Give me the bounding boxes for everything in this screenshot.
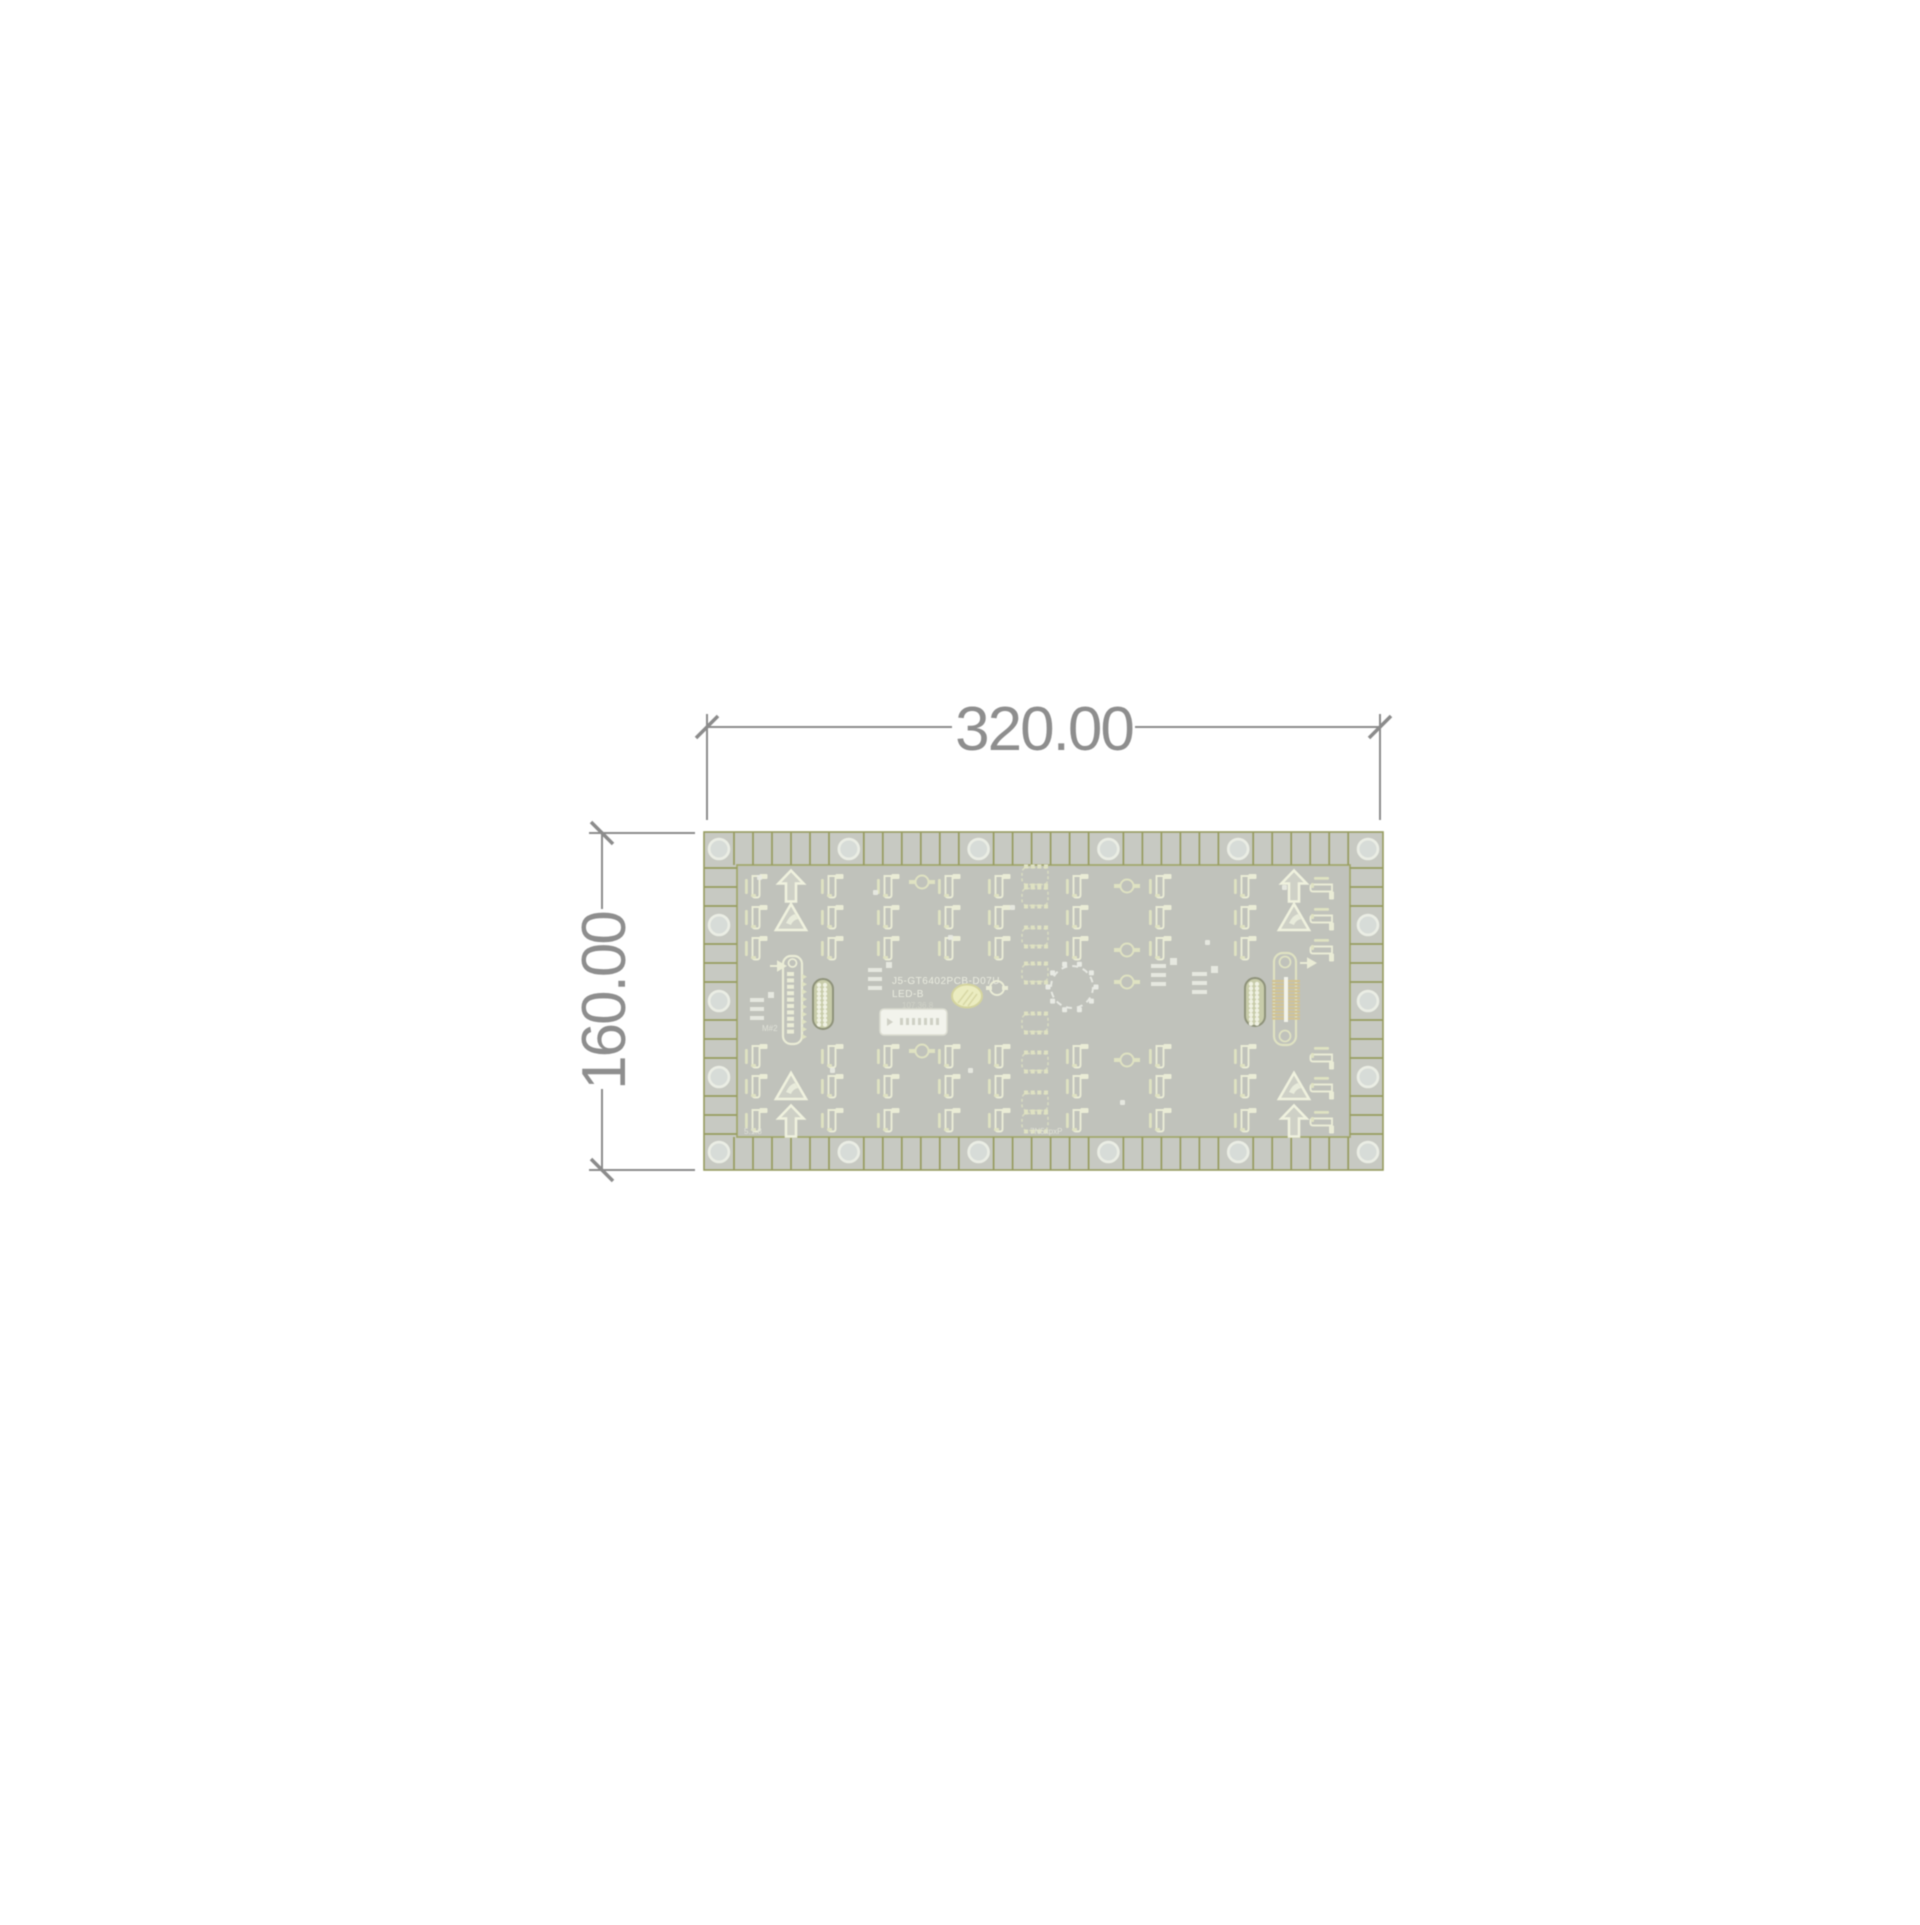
svg-text:M#2: M#2	[762, 1024, 778, 1033]
svg-text:J5-GT6402PCB-D07U: J5-GT6402PCB-D07U	[892, 976, 1000, 987]
svg-text:LED-B: LED-B	[892, 989, 924, 1000]
svg-text:5.1.8: 5.1.8	[744, 1127, 762, 1136]
svg-text:7N5xpxP: 7N5xpxP	[1030, 1127, 1062, 1136]
svg-text:320.00: 320.00	[955, 695, 1133, 764]
svg-text:160.00: 160.00	[570, 912, 639, 1090]
